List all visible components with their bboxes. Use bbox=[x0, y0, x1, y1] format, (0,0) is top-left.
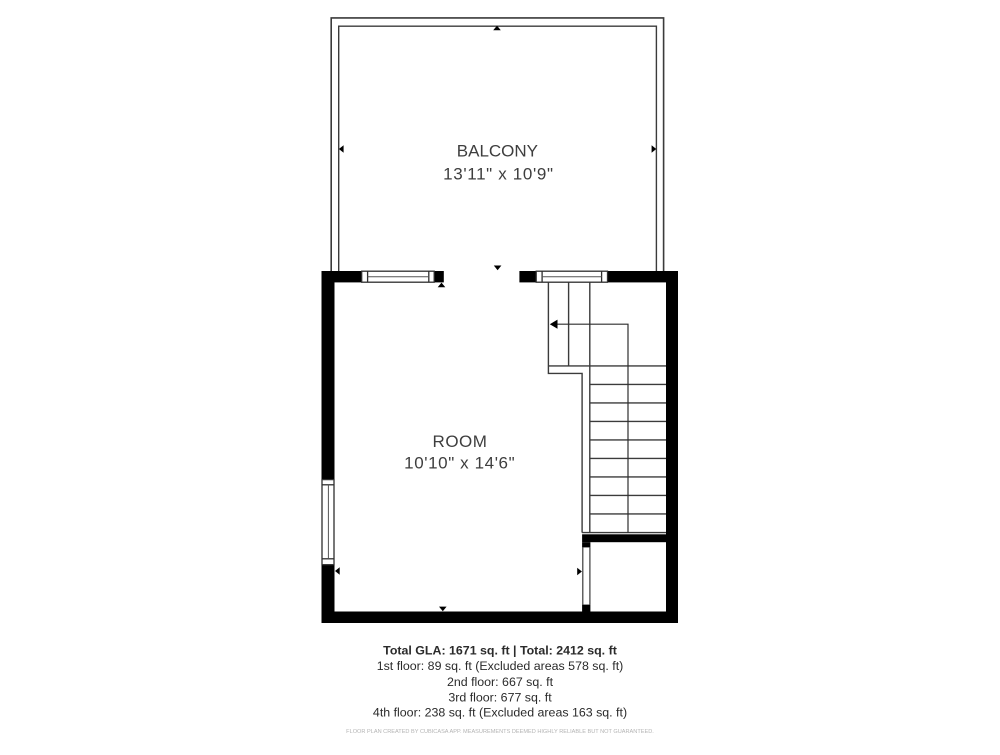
svg-text:13'11" x 10'9": 13'11" x 10'9" bbox=[443, 165, 554, 184]
svg-text:4th floor: 238 sq. ft (Exclude: 4th floor: 238 sq. ft (Excluded areas 16… bbox=[373, 705, 627, 719]
svg-text:Total GLA: 1671 sq. ft | Total: Total GLA: 1671 sq. ft | Total: 2412 sq.… bbox=[383, 644, 617, 658]
svg-text:BALCONY: BALCONY bbox=[457, 141, 538, 160]
svg-text:ROOM: ROOM bbox=[433, 432, 488, 451]
svg-text:3rd floor: 677 sq. ft: 3rd floor: 677 sq. ft bbox=[448, 690, 552, 704]
svg-text:10'10" x 14'6": 10'10" x 14'6" bbox=[404, 454, 515, 473]
svg-text:2nd floor: 667 sq. ft: 2nd floor: 667 sq. ft bbox=[447, 675, 554, 689]
svg-text:1st floor: 89 sq. ft (Excluded: 1st floor: 89 sq. ft (Excluded areas 578… bbox=[377, 659, 624, 673]
svg-text:FLOOR PLAN CREATED BY CUBICASA: FLOOR PLAN CREATED BY CUBICASA APP. MEAS… bbox=[346, 729, 654, 735]
